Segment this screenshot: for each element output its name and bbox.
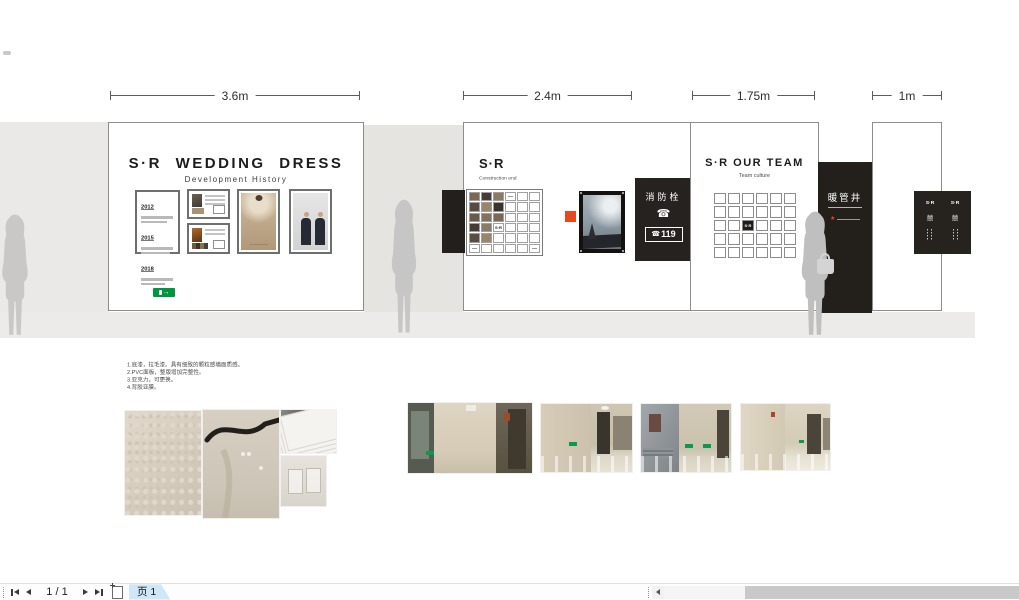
fire-alarm-dot <box>771 412 775 417</box>
grid-cell <box>529 202 540 211</box>
timeline-frame[interactable]: 2012 2015 2018 <box>135 190 180 254</box>
dimension-tick <box>941 91 942 100</box>
door <box>508 409 526 469</box>
grid-cell <box>481 213 492 222</box>
wall-subtitle: Development History <box>109 175 363 184</box>
grid-cell <box>770 233 782 244</box>
note-line: 1.底漆，拉毛漆。具有细致的颗粒感墙面质感。 <box>127 361 301 368</box>
wall-texture-photo[interactable] <box>203 410 279 518</box>
dimension-tick <box>463 91 464 100</box>
timeline-entry: 2015 <box>141 227 174 254</box>
grid-cell <box>529 223 540 232</box>
grid-cell <box>481 202 492 211</box>
grid-cell <box>756 233 768 244</box>
acrylic-frames-photo[interactable] <box>281 456 326 506</box>
screw-dot <box>580 192 582 194</box>
dimension-tick <box>814 91 815 100</box>
timeline-year: 2018 <box>141 266 154 272</box>
grid-cell <box>756 206 768 217</box>
grid-cell <box>770 247 782 258</box>
grid-cell <box>517 233 528 242</box>
paint-texture-photo[interactable] <box>125 411 201 515</box>
dimension-tick <box>110 91 111 100</box>
floor-gloss <box>741 454 830 470</box>
note-line: 4.背胶亚膜。 <box>127 383 301 390</box>
team-photo-grid: S·R <box>714 193 796 258</box>
grid-cell <box>481 223 492 232</box>
photo-caption-line <box>250 244 268 245</box>
add-page-button[interactable] <box>112 586 123 599</box>
phone-icon: ☎ <box>651 231 660 238</box>
dimension-label: 1.75m <box>730 89 777 103</box>
screw-dot <box>580 250 582 252</box>
fire-hydrant-panel[interactable]: 消防栓 ☎ ☎ 119 <box>635 178 692 261</box>
ceiling-fixture <box>466 405 476 411</box>
timeline-year: 2015 <box>141 235 154 241</box>
orange-accent-square[interactable] <box>565 211 576 222</box>
grid-cell <box>714 233 726 244</box>
grid-cell <box>784 193 796 204</box>
doorway <box>807 414 821 454</box>
wall-subtitle: Team culture <box>711 172 797 178</box>
grid-cell <box>505 202 516 211</box>
page-navigation: 1 / 1 <box>11 586 123 599</box>
dimension-2-4m[interactable]: 2.4m <box>463 88 632 102</box>
floor-gloss <box>641 456 731 472</box>
floor-gloss <box>541 456 632 472</box>
next-page-button[interactable] <box>83 589 88 595</box>
grid-cell <box>728 220 740 231</box>
clip-box <box>213 240 225 249</box>
grid-cell <box>517 213 528 222</box>
grid-cell <box>529 233 540 242</box>
grid-cell <box>529 192 540 201</box>
grid-cell <box>493 233 504 242</box>
grid-cell: S·R <box>493 223 504 232</box>
grid-cell <box>517 192 528 201</box>
grid-cell <box>770 193 782 204</box>
dimension-1m[interactable]: 1m <box>872 88 942 102</box>
grid-cell <box>770 206 782 217</box>
exit-sign-photo <box>799 440 804 443</box>
grid-cell <box>469 233 480 242</box>
wall-panel-history[interactable]: S·R WEDDING DRESS Development History 20… <box>108 122 364 311</box>
grid-cell <box>728 247 740 258</box>
acrylic-frame <box>288 469 303 494</box>
grid-cell <box>742 193 754 204</box>
phone-icon: ☎ <box>635 209 692 220</box>
previous-page-button[interactable] <box>26 589 31 595</box>
grid-cell <box>517 223 528 232</box>
text-bar <box>141 216 173 219</box>
clip-text-bars <box>205 229 225 237</box>
grid-cell <box>517 244 528 253</box>
dimension-tick <box>872 91 873 100</box>
grid-cell <box>481 192 492 201</box>
grid-cell <box>756 220 768 231</box>
grid-cell <box>505 223 516 232</box>
exit-sign-photo <box>685 444 693 448</box>
grid-cell <box>529 244 540 253</box>
note-line: 2.PVC面板，整版增加完整性。 <box>127 368 301 375</box>
dimension-label: 1m <box>892 89 923 103</box>
grid-black-backing[interactable] <box>442 190 465 253</box>
wall-title: S·R <box>479 156 504 171</box>
scrollbar-thumb[interactable] <box>745 586 1019 599</box>
history-clip-frame[interactable] <box>187 223 230 254</box>
handbag <box>817 259 834 274</box>
grid-cell <box>714 220 726 231</box>
sign-column: S·R 囍 <box>920 198 940 254</box>
sign-vertical-text <box>920 229 940 240</box>
grid-cell <box>770 220 782 231</box>
grid-cell <box>742 247 754 258</box>
emergency-number-box: ☎ 119 <box>645 227 683 242</box>
eiffel-tower-silhouette <box>588 223 596 239</box>
last-page-button[interactable] <box>95 589 103 596</box>
grid-cell <box>756 193 768 204</box>
corridor-end <box>613 416 632 450</box>
text-bar <box>141 252 170 255</box>
dimension-3-6m[interactable]: 3.6m <box>110 88 360 102</box>
grid-cell <box>728 206 740 217</box>
grid-cell <box>493 202 504 211</box>
timeline-entry: 2012 <box>141 196 174 223</box>
bride-hair <box>255 195 262 201</box>
grid-cell <box>756 247 768 258</box>
person-silhouette-shopper[interactable] <box>791 210 839 338</box>
scroll-left-button[interactable] <box>652 586 664 599</box>
paris-photo-frame[interactable] <box>579 191 625 253</box>
grid-cell <box>742 206 754 217</box>
stray-mark <box>3 51 11 55</box>
page-indicator: 1 / 1 <box>38 586 76 598</box>
emergency-number: 119 <box>661 230 676 239</box>
grid-cell <box>469 213 480 222</box>
grooms-photo <box>293 193 328 250</box>
grid-cell <box>469 223 480 232</box>
grid-cell: S·R <box>742 220 754 231</box>
sign-glyph: 囍 <box>923 213 937 222</box>
grid-cell <box>529 213 540 222</box>
acrylic-frame <box>306 468 321 493</box>
paris-photo <box>583 195 621 249</box>
site-photo-corridor-3[interactable] <box>641 404 731 472</box>
notice-plate <box>504 413 510 421</box>
sign-brand: S·R <box>923 200 935 206</box>
scrollbar-separator <box>648 587 649 598</box>
scrollbar-track[interactable] <box>664 586 745 599</box>
person-silhouette[interactable] <box>0 213 38 338</box>
grid-cell <box>469 192 480 201</box>
sign-vertical-text <box>945 229 965 240</box>
photo-grid: S·R <box>469 192 540 253</box>
site-photo-corridor-2[interactable] <box>541 404 632 472</box>
drawing-canvas: 3.6m 2.4m 1.75m 1m S·R WEDDING DRESS Dev… <box>0 0 1019 600</box>
bride-photo <box>241 193 276 250</box>
wall-title: S·R OUR TEAM <box>691 157 818 169</box>
grid-cell <box>714 247 726 258</box>
doorway <box>717 410 729 458</box>
clip-box <box>213 205 225 214</box>
grid-cell-brand: S·R <box>496 226 501 230</box>
door-panel <box>649 414 661 432</box>
timeline-entry: 2018 <box>141 258 174 285</box>
material-notes: 1.底漆，拉毛漆。具有细致的颗粒感墙面质感。2.PVC面板，整版增加完整性。3.… <box>127 361 301 391</box>
site-photo-corridor-4[interactable] <box>741 404 830 470</box>
doorway <box>597 412 610 454</box>
ceiling-light <box>601 406 609 410</box>
grid-cell <box>714 206 726 217</box>
grid-cell <box>481 233 492 242</box>
screw-dot <box>622 250 624 252</box>
grid-cell <box>505 213 516 222</box>
pvc-board-photo[interactable] <box>281 410 336 453</box>
rule-line <box>837 219 860 220</box>
wall-title: S·R WEDDING DRESS <box>109 155 363 172</box>
grid-cell <box>469 244 480 253</box>
grid-cell <box>728 193 740 204</box>
sign-glyph: 囍 <box>948 213 962 222</box>
grid-cell <box>728 233 740 244</box>
plus-icon <box>112 583 113 588</box>
dimension-label: 2.4m <box>527 89 568 103</box>
dimension-1-75m[interactable]: 1.75m <box>692 88 815 102</box>
grid-cell <box>505 192 516 201</box>
horizontal-scrollbar <box>648 584 1019 600</box>
bride-photo-frame[interactable] <box>237 189 280 254</box>
exit-sign-photo <box>569 442 577 446</box>
exit-sign-photo <box>426 451 434 455</box>
note-line: 3.亚克力，可更换。 <box>127 376 301 383</box>
exit-arrow-icon: → <box>163 289 170 296</box>
exit-sign-photo <box>703 444 711 448</box>
photo-grid-frame[interactable]: S·R <box>466 189 543 256</box>
grid-cell <box>714 193 726 204</box>
toolbar-grip <box>3 587 4 598</box>
grid-cell-brand: S·R <box>746 223 751 228</box>
duct-shaft-label: 暖管井 <box>828 190 863 208</box>
text-bar <box>141 221 167 224</box>
sign-column: S·R 囍 <box>945 198 965 254</box>
clip-photo <box>192 194 202 207</box>
first-page-button[interactable] <box>11 589 19 596</box>
groom-figure <box>315 218 325 245</box>
exit-sign[interactable]: → <box>153 288 175 297</box>
page-tab[interactable]: 页 1 <box>129 585 170 600</box>
text-bar <box>141 247 173 250</box>
dimension-tick <box>359 91 360 100</box>
dimension-tick <box>631 91 632 100</box>
wall-subtitle: Construction end <box>479 175 517 181</box>
screw-dot <box>622 192 624 194</box>
grooms-photo-frame[interactable] <box>289 189 332 254</box>
corridor-end <box>823 418 830 450</box>
grid-cell <box>493 244 504 253</box>
timeline-year: 2012 <box>141 204 154 210</box>
status-bar: 1 / 1 页 1 <box>0 583 1019 600</box>
history-clip-frame[interactable] <box>187 189 230 219</box>
dimension-tick <box>692 91 693 100</box>
grid-cell <box>505 233 516 242</box>
grid-cell <box>505 244 516 253</box>
grid-cell <box>481 244 492 253</box>
text-bar <box>141 278 173 281</box>
grid-cell <box>742 233 754 244</box>
dimension-label: 3.6m <box>215 89 256 103</box>
clip-chip <box>192 208 204 214</box>
grid-cell <box>469 202 480 211</box>
site-photo-corridor-1[interactable] <box>408 403 532 473</box>
clip-chip <box>192 243 208 249</box>
fire-hydrant-label: 消防栓 <box>635 190 692 203</box>
groom-figure <box>301 218 311 245</box>
clip-photo <box>192 228 202 242</box>
grid-cell <box>493 192 504 201</box>
grid-cell <box>517 202 528 211</box>
grid-cell <box>493 213 504 222</box>
door-sign-panel[interactable]: S·R 囍 S·R 囍 <box>914 191 971 254</box>
person-silhouette[interactable] <box>382 198 426 336</box>
sign-brand: S·R <box>949 200 961 206</box>
exit-man-icon <box>159 290 162 295</box>
text-bar <box>141 283 165 286</box>
